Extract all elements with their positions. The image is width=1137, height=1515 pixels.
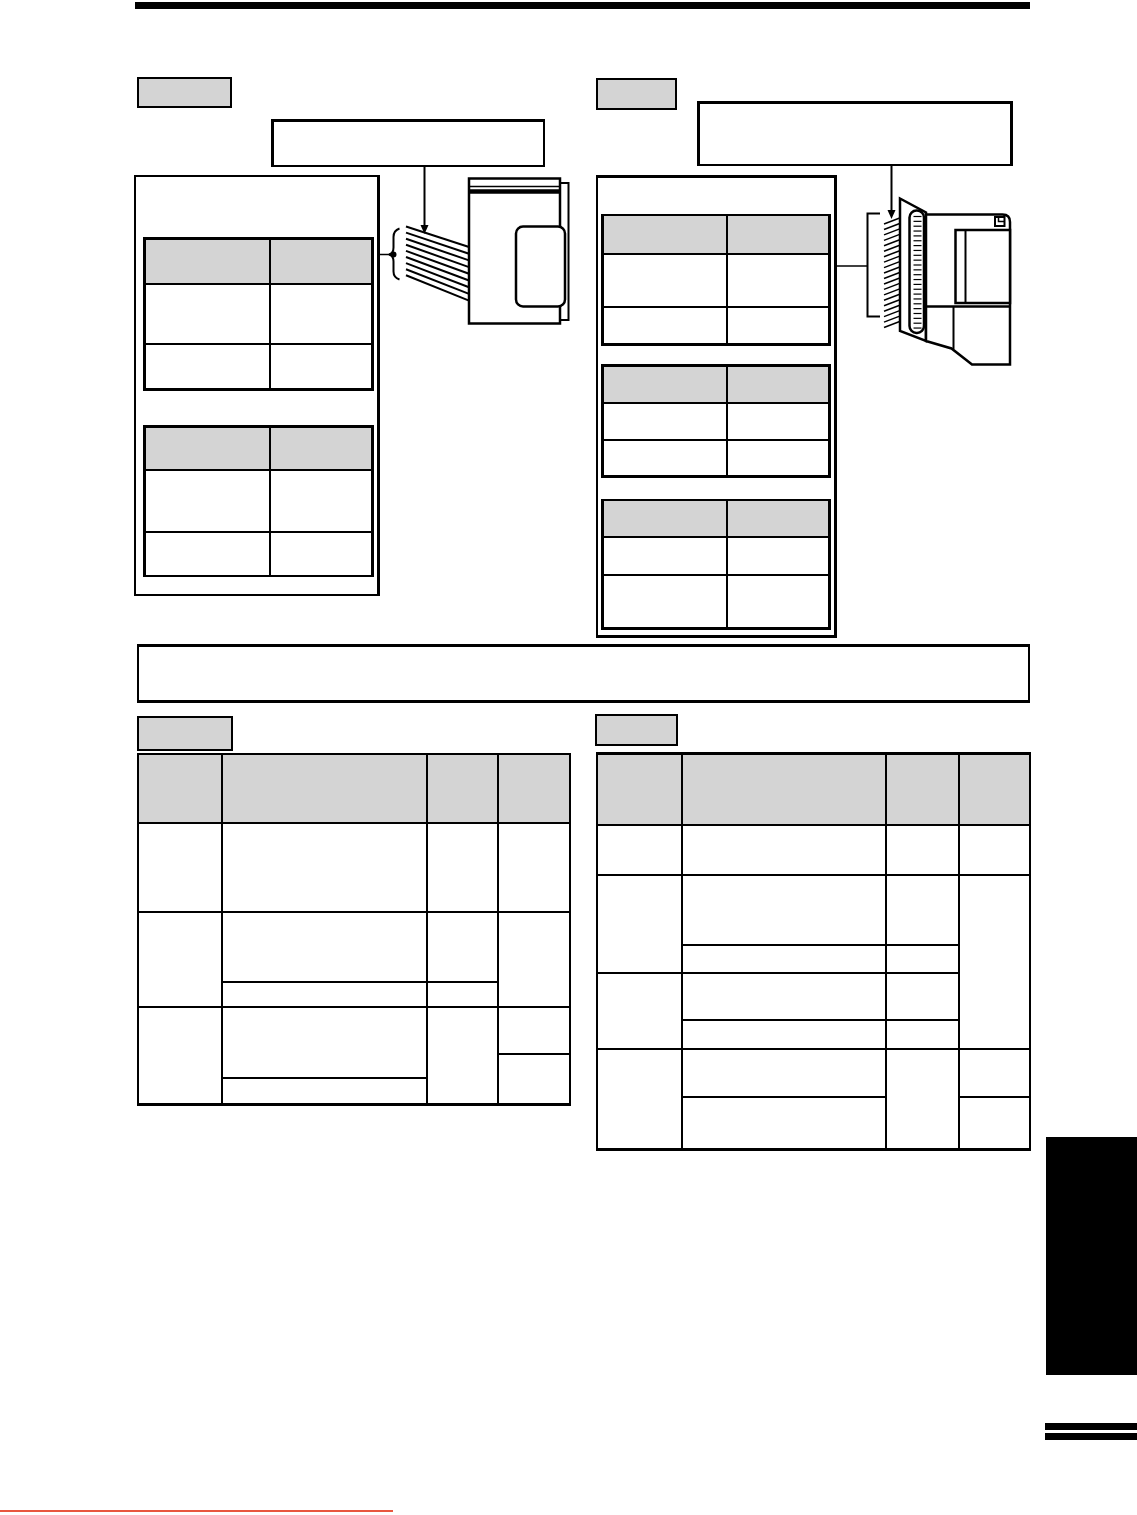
top-rule xyxy=(135,2,1030,9)
device-right-door xyxy=(956,230,1011,303)
right-table-1 xyxy=(603,215,830,345)
left-table-1 xyxy=(145,239,373,390)
callout-pointer-left xyxy=(421,166,429,234)
device-right xyxy=(900,199,1010,365)
right-table-3 xyxy=(603,500,830,629)
pin-bracket xyxy=(836,214,881,317)
callout-box-right xyxy=(699,103,1012,166)
left-table-2 xyxy=(145,427,373,577)
document-page xyxy=(0,0,1137,1515)
section-label-top-right xyxy=(597,79,677,109)
section-label-bottom-right xyxy=(596,715,677,745)
device-left-slot xyxy=(516,227,565,307)
device-left xyxy=(469,179,569,324)
footer-mark xyxy=(1045,1423,1137,1440)
callout-pointer-right xyxy=(888,165,896,219)
right-table-2 xyxy=(603,366,830,477)
connector-pins xyxy=(884,218,901,328)
cable-brace xyxy=(379,229,400,280)
note-box xyxy=(138,646,1029,702)
footer-red-rule xyxy=(0,1510,393,1513)
section-label-top-left xyxy=(138,78,231,107)
callout-box-left xyxy=(273,121,545,167)
bottom-right-table xyxy=(597,754,1030,1150)
section-label-bottom-left xyxy=(138,717,232,750)
ribbon-cable xyxy=(406,227,469,301)
device-right-slot xyxy=(910,211,925,334)
bottom-left-table xyxy=(138,754,570,1105)
chapter-tab xyxy=(1046,1137,1137,1375)
